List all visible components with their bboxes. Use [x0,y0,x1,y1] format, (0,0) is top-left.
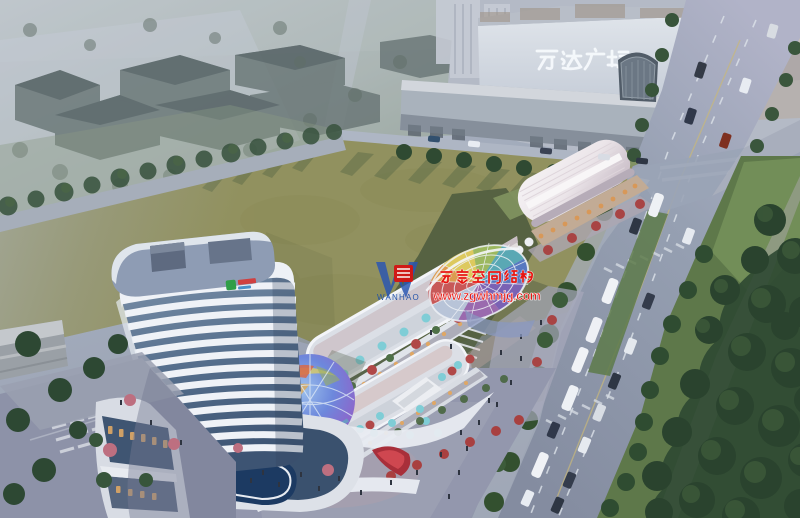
svg-text:www.zgwhmjg.com: www.zgwhmjg.com [432,289,541,303]
svg-text:WANHAO: WANHAO [377,293,420,302]
